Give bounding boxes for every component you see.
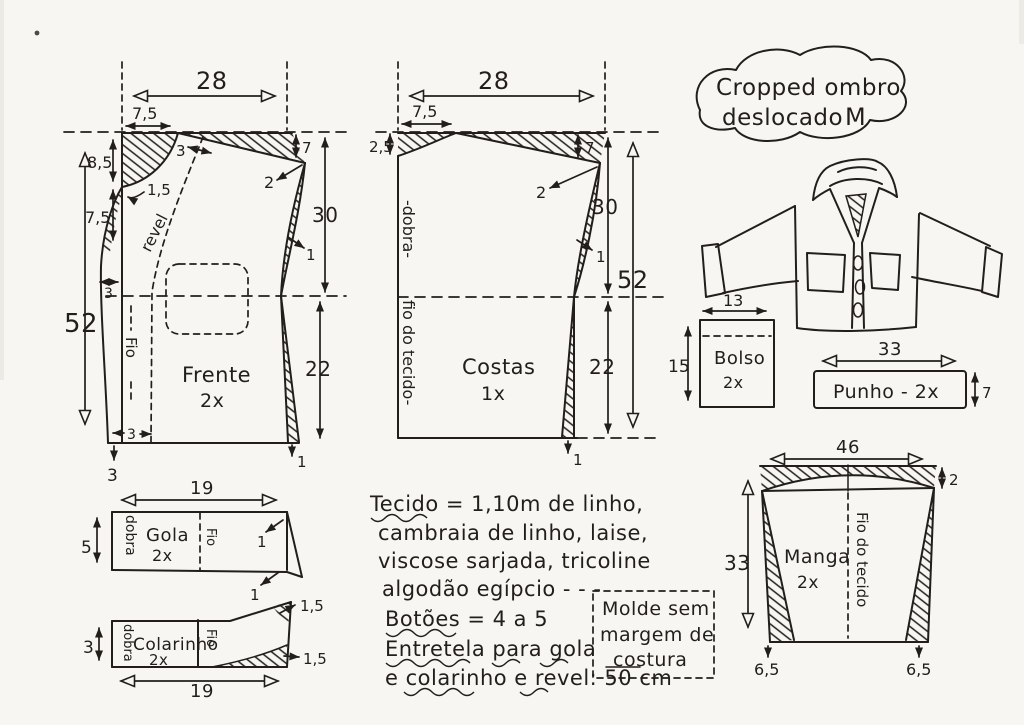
button-icon: [854, 303, 863, 317]
gola-qty: 2x: [152, 546, 173, 565]
costas-width-label: 28: [478, 67, 510, 95]
costas-drop-right-label: 7: [585, 139, 595, 157]
note-fabric-3: viscose sarjada, tricoline: [378, 549, 651, 573]
jacket-pocket-left: [807, 253, 845, 292]
gola-grain-label: Fio: [203, 528, 218, 546]
gola-fold-label: dobra: [122, 515, 138, 556]
frente-ext-label: 3: [104, 286, 113, 302]
frente-neck-curve-label: 1,5: [147, 181, 171, 199]
costas-shoulder-label: 7,5: [412, 102, 437, 121]
frente-shoulder-shift-label: 3: [176, 142, 186, 160]
jacket-collar: [813, 159, 897, 243]
frente-shoulder-label: 7,5: [132, 104, 157, 123]
note-fabric-2: cambraia de linho, laise,: [378, 521, 648, 545]
frente-pocket-outline: [166, 264, 248, 334]
costas-side-len-label: 22: [589, 355, 615, 379]
note-buttons: Botões = 4 a 5: [385, 607, 548, 631]
frente-side-len-label: 22: [305, 357, 331, 381]
note-fabric-4: algodão egípcio - - -: [382, 577, 602, 601]
frente-drop-right-label: 7: [302, 139, 312, 157]
colarinho-fold-label: dobra: [120, 624, 135, 662]
piece-colarinho: 3 19 1,5 1,5 Colarinho 2x dobra Fio: [83, 597, 327, 702]
manga-slant-right-label: 6,5: [906, 660, 931, 679]
frente-hem-drop-label: 3: [107, 466, 118, 486]
costas-hem-ease-label: 1: [573, 451, 583, 469]
piece-gola: 19 5 1 1 Gola 2x dobra Fio: [81, 478, 302, 604]
colarinho-rise-top-label: 1,5: [300, 597, 324, 615]
bolso-qty: 2x: [723, 373, 744, 392]
molde-line2: margem de: [600, 624, 714, 646]
frente-neck-depth-label: 8,5: [87, 153, 112, 172]
costas-shift-note-label: 2: [536, 183, 546, 202]
title-size: M: [845, 103, 866, 131]
manga-name: Manga: [784, 546, 850, 568]
manga-grain-label: Fio do tecido: [853, 512, 871, 607]
jacket-illustration: [702, 159, 1002, 331]
note-interfacing-1: Entretela para gola: [385, 637, 596, 661]
costas-name: Costas: [462, 355, 536, 379]
bolso-name: Bolso: [714, 348, 765, 369]
manga-cap-depth-label: 2: [949, 471, 959, 489]
note-fabric-1: Tecido = 1,10m de linho,: [369, 492, 643, 516]
frente-front-drop-label: 7,5: [85, 208, 110, 227]
punho-height-label: 7: [982, 384, 992, 402]
jacket-front: [807, 243, 900, 328]
frente-length-label: 52: [64, 309, 98, 339]
piece-punho: 33 Punho - 2x 7: [814, 339, 992, 408]
piece-frente: 28 52 7,5 3 8,5 1,5 7,5 3 7 2 30 1 22: [64, 62, 346, 486]
no-seam-allowance-box: Molde sem margem de costura: [593, 591, 714, 678]
molde-line1: Molde sem: [602, 598, 710, 620]
frente-width-label: 28: [196, 67, 228, 95]
frente-hem-ease-label: 1: [297, 453, 307, 471]
title-cloud: Cropped ombro deslocado M: [697, 46, 906, 141]
frente-hem-ext-label: 3: [127, 427, 136, 443]
pattern-sheet: 28 52 7,5 3 8,5 1,5 7,5 3 7 2 30 1 22: [0, 0, 1024, 725]
punho-name: Punho - 2x: [833, 381, 939, 403]
title-line1: Cropped ombro: [716, 75, 901, 101]
piece-bolso: 13 15 Bolso 2x: [668, 291, 774, 407]
gola-tip-bottom-label: 1: [250, 586, 260, 604]
costas-armhole-len-label: 30: [592, 195, 618, 219]
piece-costas: 28 7,5 2,5 7 2 30 52 1 22 1 Costas 1x -d…: [369, 62, 663, 469]
colarinho-qty: 2x: [149, 651, 168, 669]
colarinho-rise-bottom-label: 1,5: [303, 650, 327, 668]
manga-width-label: 46: [836, 437, 860, 458]
button-icon: [854, 256, 863, 270]
costas-fold-label: -dobra-: [399, 200, 418, 258]
punho-width-label: 33: [878, 339, 902, 360]
frente-grain-label: Fio: [122, 337, 140, 358]
manga-qty: 2x: [797, 573, 819, 593]
manga-slant-left-label: 6,5: [754, 660, 779, 679]
costas-length-label: 52: [617, 266, 649, 294]
gola-height-label: 5: [81, 538, 92, 558]
jacket-pocket-right: [870, 253, 900, 290]
piece-manga: 46 33 2 6,5 6,5 Manga 2x Fio do tecido: [724, 437, 959, 679]
title-line2: deslocado: [722, 105, 843, 131]
bolso-height-label: 15: [668, 357, 690, 377]
frente-shift-note-label: 2: [264, 173, 274, 192]
costas-grain-label: fio do tecido-: [399, 300, 418, 405]
costas-neck-depth-label: 2,5: [369, 138, 393, 156]
manga-height-label: 33: [724, 551, 750, 575]
frente-qty: 2x: [200, 390, 224, 412]
colarinho-height-label: 3: [83, 638, 94, 658]
gola-width-label: 19: [190, 478, 214, 499]
colarinho-grain-label: Fio: [203, 629, 218, 647]
molde-line3: costura: [613, 649, 687, 671]
frente-ease-mid-label: 1: [306, 246, 316, 264]
costas-qty: 1x: [481, 383, 505, 405]
costas-ease-mid-label: 1: [596, 248, 606, 266]
colarinho-width-label: 19: [190, 681, 214, 702]
gola-name: Gola: [146, 525, 189, 546]
gola-tip-top-label: 1: [257, 533, 267, 551]
frente-name: Frente: [182, 363, 251, 387]
costas-dimensions: 28 7,5 2,5 7 2 30 52 1 22 1: [369, 67, 649, 469]
pattern-drawing: 28 52 7,5 3 8,5 1,5 7,5 3 7 2 30 1 22: [0, 0, 1024, 725]
bolso-width-label: 13: [723, 291, 743, 310]
frente-armhole-len-label: 30: [312, 203, 338, 227]
